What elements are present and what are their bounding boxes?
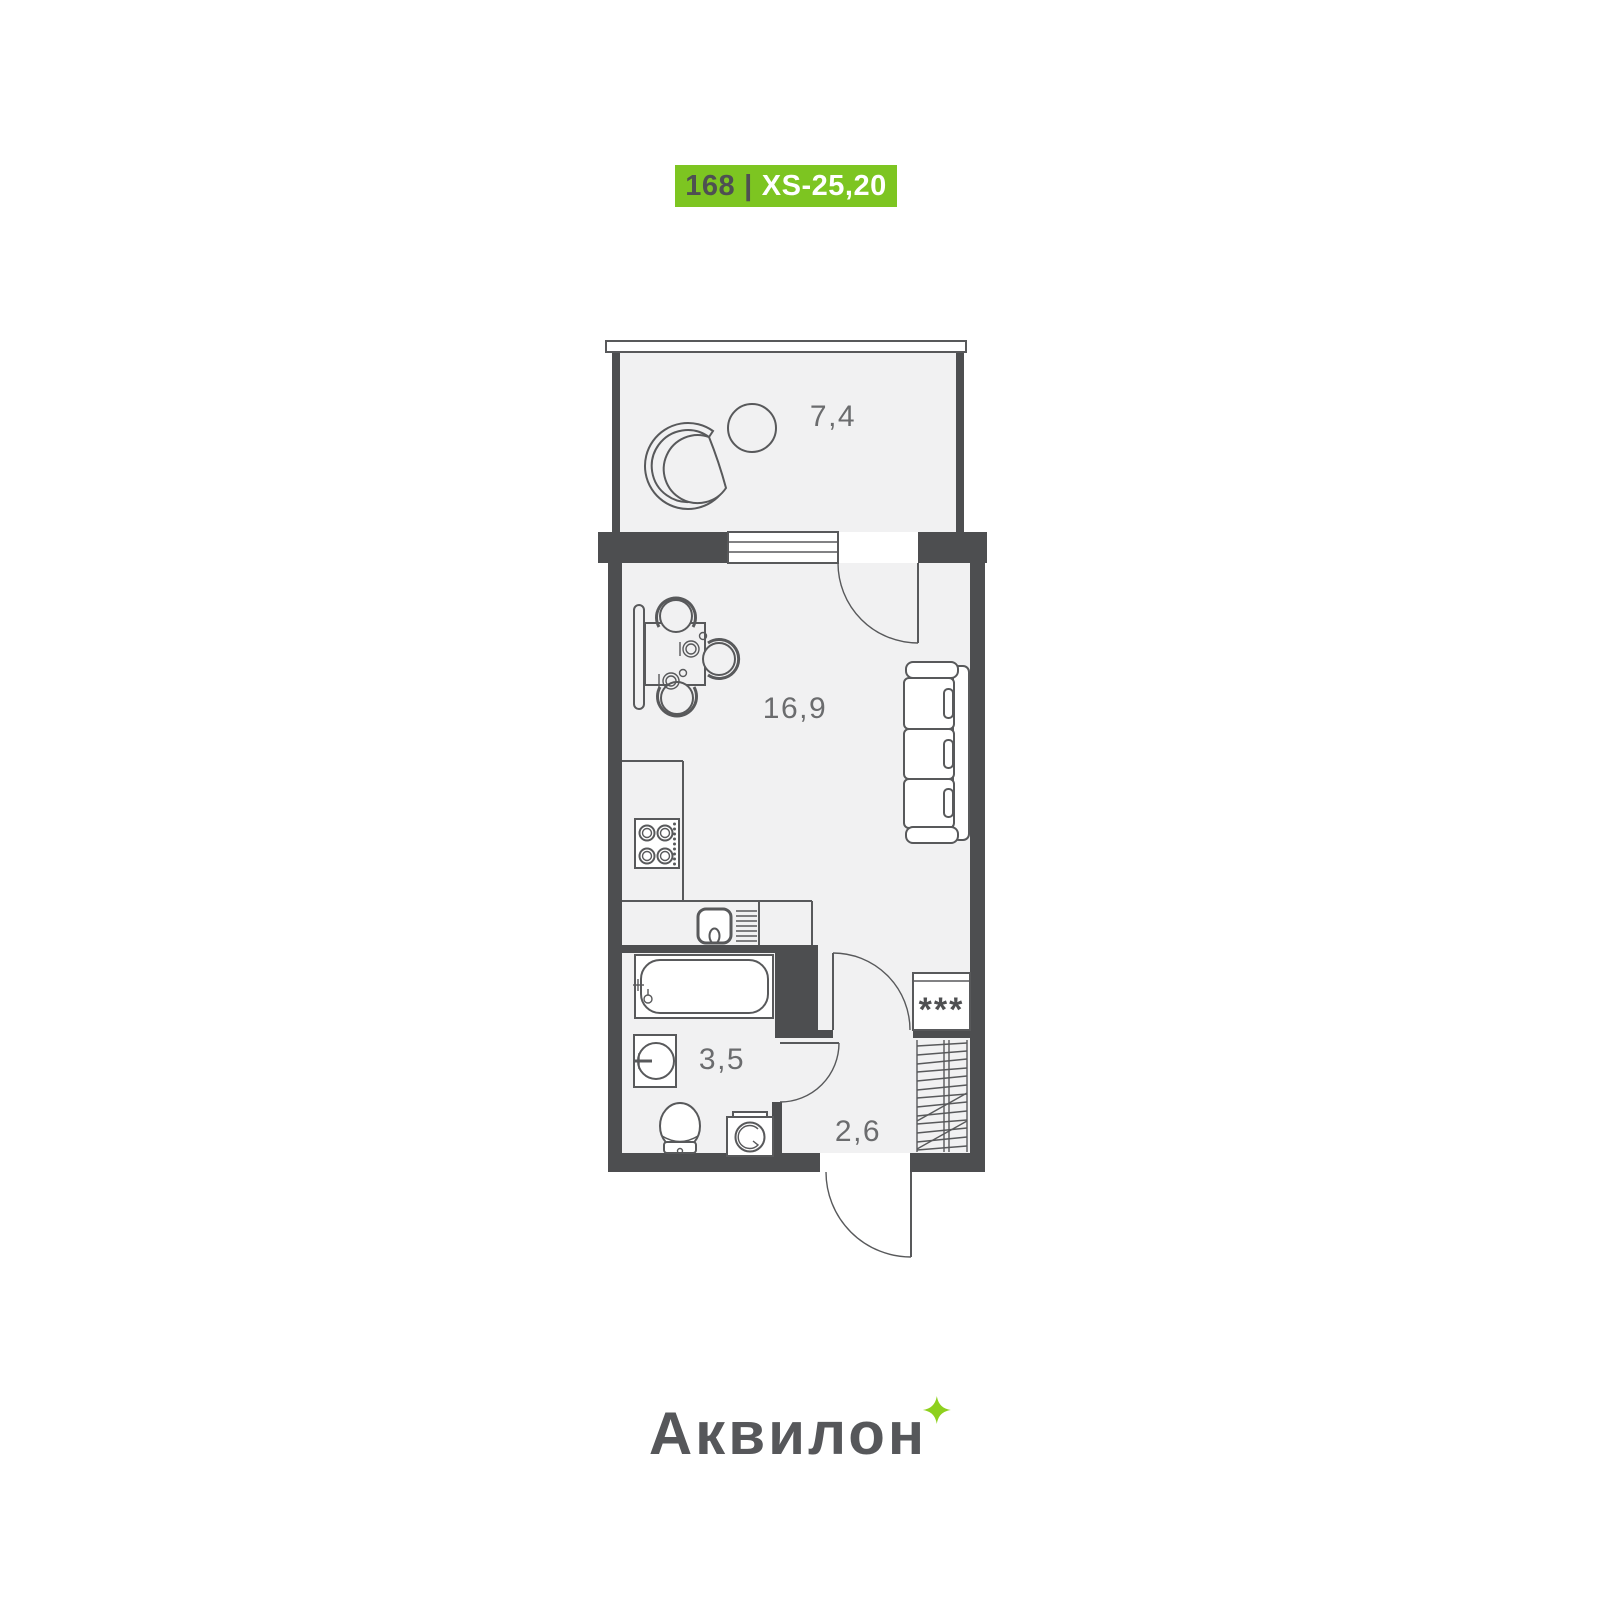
sofa	[904, 662, 969, 843]
sparkle-icon	[923, 1396, 951, 1424]
entrance-door	[826, 1172, 911, 1257]
badge-separator: |	[744, 170, 753, 203]
balcony-table	[728, 404, 776, 452]
floor-plan: *** 7,4 16,9 3,5 2,6	[590, 330, 1000, 1270]
balcony-glazing	[606, 341, 966, 352]
bathtub	[633, 955, 773, 1018]
stove	[635, 819, 679, 868]
brand-logo: Аквилон	[649, 1402, 951, 1465]
wardrobe: ***	[913, 973, 970, 1030]
window	[728, 532, 838, 563]
room-label-balcony: 7,4	[810, 400, 856, 433]
brand-name: Аквилон	[649, 1402, 927, 1465]
room-label-bathroom: 3,5	[699, 1043, 745, 1076]
unit-badge: 168 | XS-25,20	[675, 165, 897, 207]
washbasin	[634, 1035, 676, 1087]
room-label-hallway: 2,6	[835, 1115, 881, 1148]
unit-number: 168	[685, 170, 735, 203]
dining-bench	[634, 605, 644, 709]
wardrobe-label: ***	[919, 991, 965, 1029]
room-label-living-room: 16,9	[763, 692, 827, 725]
washing-machine	[727, 1112, 773, 1156]
toilet	[660, 1103, 700, 1154]
plan-type-label: XS-25,20	[762, 170, 887, 203]
